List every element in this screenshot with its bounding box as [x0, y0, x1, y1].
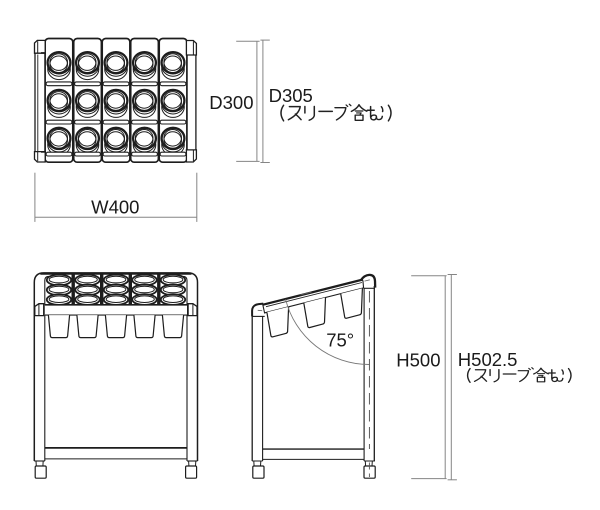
- svg-text:H500: H500: [396, 350, 440, 371]
- svg-text:W400: W400: [91, 197, 139, 218]
- svg-text:75°: 75°: [326, 329, 354, 350]
- svg-text:H502.5: H502.5: [458, 349, 518, 370]
- svg-text:D305: D305: [269, 85, 313, 106]
- svg-text:D300: D300: [209, 92, 253, 113]
